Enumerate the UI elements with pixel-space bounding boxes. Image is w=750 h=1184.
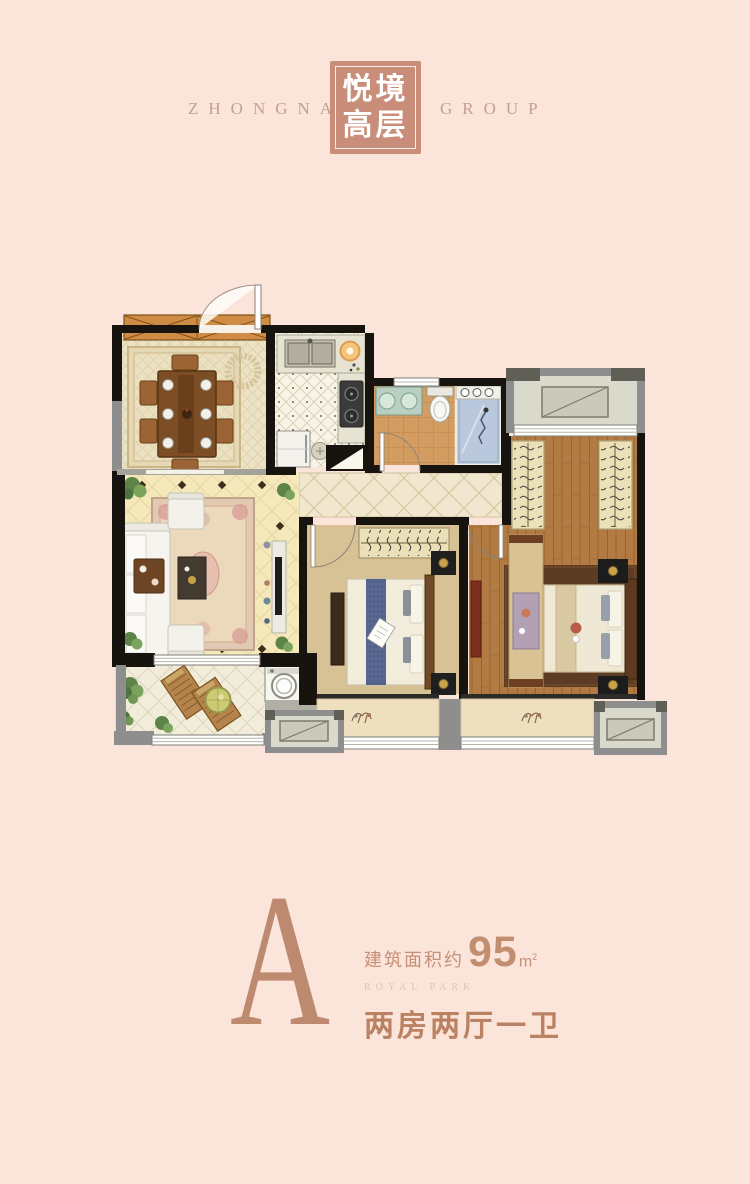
logo-badge-frame: 悦境 高层 (335, 66, 416, 149)
ac-platform-top-right (506, 368, 645, 436)
ac-platform-bottom-right (594, 701, 667, 755)
red-bench (471, 581, 481, 657)
living-balcony-window (154, 655, 260, 665)
floor-plan (104, 283, 667, 761)
brand-right-text: GROUP (440, 99, 548, 119)
toilet (427, 387, 453, 396)
shower (456, 386, 501, 465)
area-unit: m2 (519, 952, 537, 971)
coffee-table (178, 557, 206, 599)
bed (347, 575, 434, 689)
logo-badge-line2: 高层 (343, 108, 409, 144)
master-bed (544, 579, 637, 679)
logo-badge-line1: 悦境 (343, 72, 409, 108)
closet-window (514, 425, 637, 436)
series-label: ROYAL PARK (364, 982, 562, 993)
entry-door (199, 285, 261, 333)
dresser (513, 593, 539, 649)
flower-decor (571, 623, 582, 634)
closet-rack-right (599, 441, 632, 529)
brand-left-text: ZHONGNA (188, 99, 342, 119)
unit-letter: A (230, 866, 330, 1056)
tv-icon (275, 557, 282, 615)
faucet-icon (308, 339, 313, 344)
hallway-floor (299, 473, 502, 517)
logo-badge: 悦境 高层 (330, 61, 421, 154)
area-unit-sup: 2 (532, 952, 537, 962)
sofa-tray-table (134, 559, 164, 593)
bathroom-window (394, 378, 439, 386)
layout-label: 两房两厅一卫 (364, 1001, 562, 1045)
unit-info: 建筑面积约 95 m2 ROYAL PARK 两房两厅一卫 (364, 928, 562, 1045)
closet-rack-left (512, 441, 544, 529)
ac-platform-bottom-center (265, 710, 344, 753)
area-row: 建筑面积约 95 m2 (364, 928, 562, 977)
flyer-page: ZHONGNA 悦境 高层 GROUP (0, 0, 750, 1184)
balcony-table (206, 688, 231, 713)
washing-machine (265, 666, 303, 702)
area-value: 95 (468, 928, 518, 977)
balcony-window (152, 735, 264, 745)
master-bay-window (461, 699, 594, 749)
area-label: 建筑面积约 (364, 946, 464, 972)
armchair-top (168, 493, 204, 529)
bed-bench (331, 593, 344, 665)
armchair-bottom (168, 625, 204, 659)
bed-canopy (509, 535, 543, 687)
